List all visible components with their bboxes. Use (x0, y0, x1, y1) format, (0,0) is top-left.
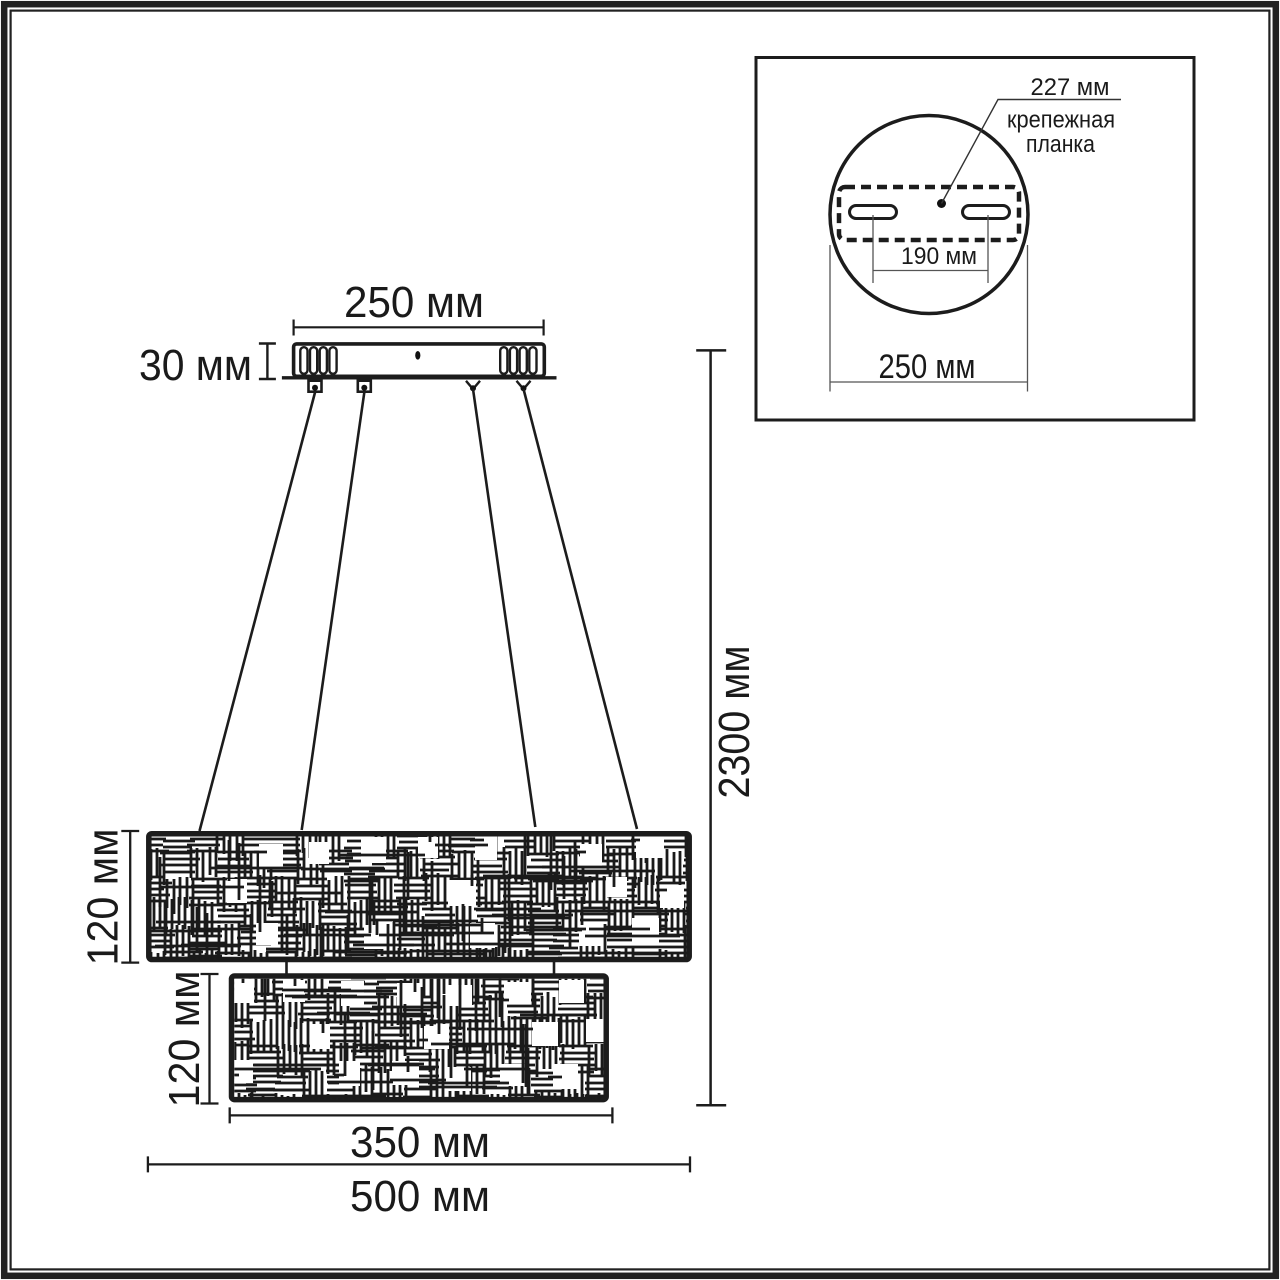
svg-text:крепежная: крепежная (1007, 107, 1115, 134)
svg-text:30 мм: 30 мм (139, 342, 252, 390)
svg-text:190 мм: 190 мм (901, 243, 977, 270)
svg-text:250 мм: 250 мм (879, 348, 976, 386)
svg-text:планка: планка (1026, 131, 1096, 158)
svg-text:227 мм: 227 мм (1031, 74, 1110, 101)
svg-text:120 мм: 120 мм (161, 971, 209, 1108)
svg-text:350 мм: 350 мм (350, 1119, 490, 1167)
svg-text:2300 мм: 2300 мм (711, 646, 759, 799)
svg-text:500 мм: 500 мм (350, 1173, 490, 1221)
svg-text:250 мм: 250 мм (344, 279, 484, 327)
svg-text:120 мм: 120 мм (80, 829, 128, 966)
